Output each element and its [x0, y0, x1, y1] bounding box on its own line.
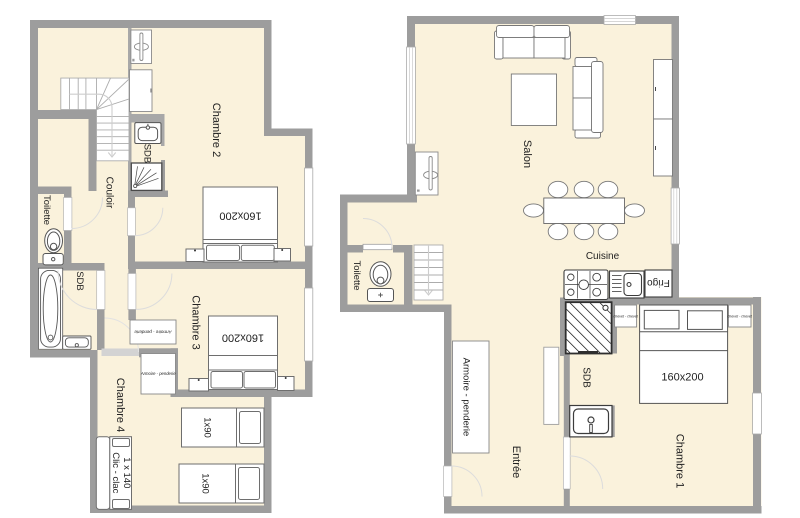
svg-text:SDB: SDB: [74, 271, 85, 291]
svg-text:160x200: 160x200: [222, 332, 264, 344]
svg-text:Couloir: Couloir: [104, 177, 115, 209]
svg-text:Toilette: Toilette: [41, 195, 52, 225]
svg-text:Chambre 2: Chambre 2: [210, 103, 222, 157]
svg-text:1x90: 1x90: [202, 417, 213, 438]
svg-text:1x90: 1x90: [200, 473, 211, 494]
svg-text:Toilette: Toilette: [351, 260, 362, 290]
svg-text:Chambre 4: Chambre 4: [114, 378, 126, 432]
svg-text:Armoire - penderie: Armoire - penderie: [134, 329, 173, 334]
svg-text:Salon: Salon: [521, 140, 533, 168]
svg-text:160x200: 160x200: [219, 210, 261, 222]
svg-text:Entrée: Entrée: [510, 446, 522, 478]
svg-text:1 x 140: 1 x 140: [121, 457, 132, 488]
svg-text:Clic - clac: Clic - clac: [110, 452, 121, 493]
svg-text:Chambre 3: Chambre 3: [190, 295, 202, 349]
svg-text:chevet - chevet: chevet - chevet: [613, 315, 638, 319]
svg-text:Frigo: Frigo: [647, 277, 670, 288]
svg-text:SDB: SDB: [142, 144, 153, 164]
svg-text:Cuisine: Cuisine: [586, 251, 620, 262]
svg-text:SDB: SDB: [581, 367, 592, 388]
svg-text:Armoire - penderie: Armoire - penderie: [461, 358, 472, 437]
svg-text:160x200: 160x200: [661, 372, 703, 384]
svg-text:Armoire - penderie: Armoire - penderie: [140, 371, 176, 376]
svg-text:Chambre 1: Chambre 1: [674, 434, 686, 488]
svg-text:chevet - chevet: chevet - chevet: [728, 315, 753, 319]
